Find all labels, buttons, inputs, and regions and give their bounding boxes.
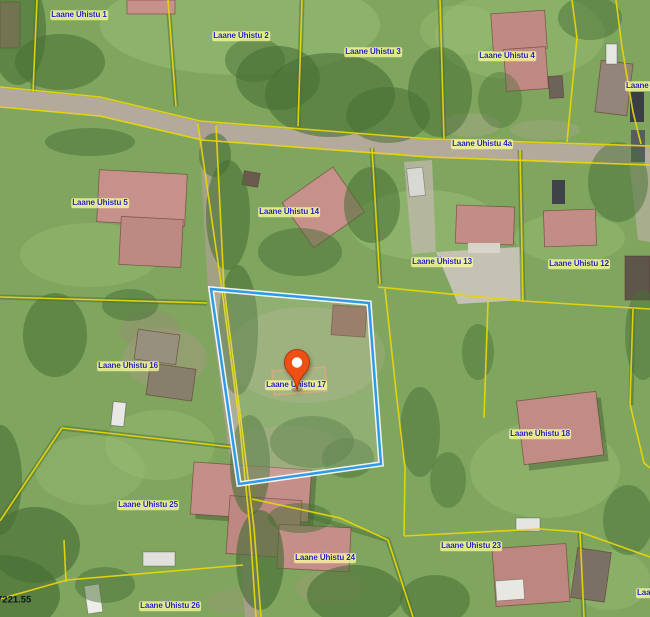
location-pin[interactable] <box>282 348 312 392</box>
aerial-imagery <box>0 0 650 617</box>
pin-body <box>285 350 310 391</box>
pin-hole <box>292 357 302 367</box>
map-viewport[interactable]: Laane Ühistu 1Laane Ühistu 2Laane Ühistu… <box>0 0 650 617</box>
